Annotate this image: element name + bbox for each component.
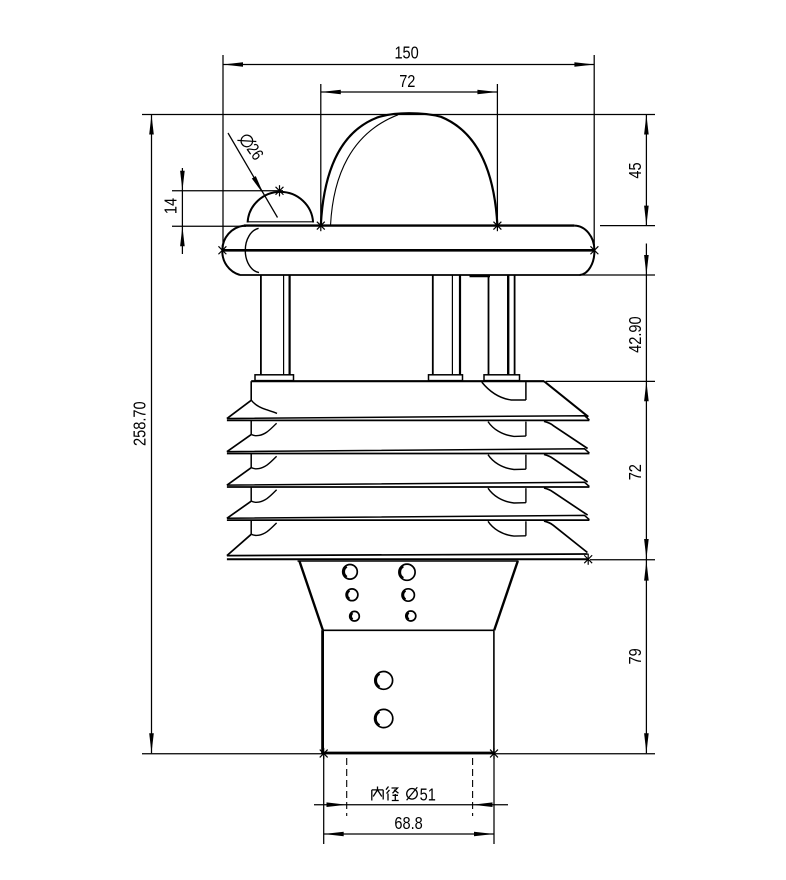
svg-text:258.70: 258.70 xyxy=(130,401,150,446)
svg-text:51: 51 xyxy=(420,785,436,805)
svg-text:72: 72 xyxy=(626,464,646,480)
svg-text:42.90: 42.90 xyxy=(626,316,646,352)
svg-text:79: 79 xyxy=(626,648,646,664)
svg-text:68.8: 68.8 xyxy=(394,814,422,834)
svg-text:45: 45 xyxy=(626,162,646,178)
svg-text:150: 150 xyxy=(394,43,418,63)
svg-text:72: 72 xyxy=(399,72,415,92)
svg-text:14: 14 xyxy=(161,198,181,214)
